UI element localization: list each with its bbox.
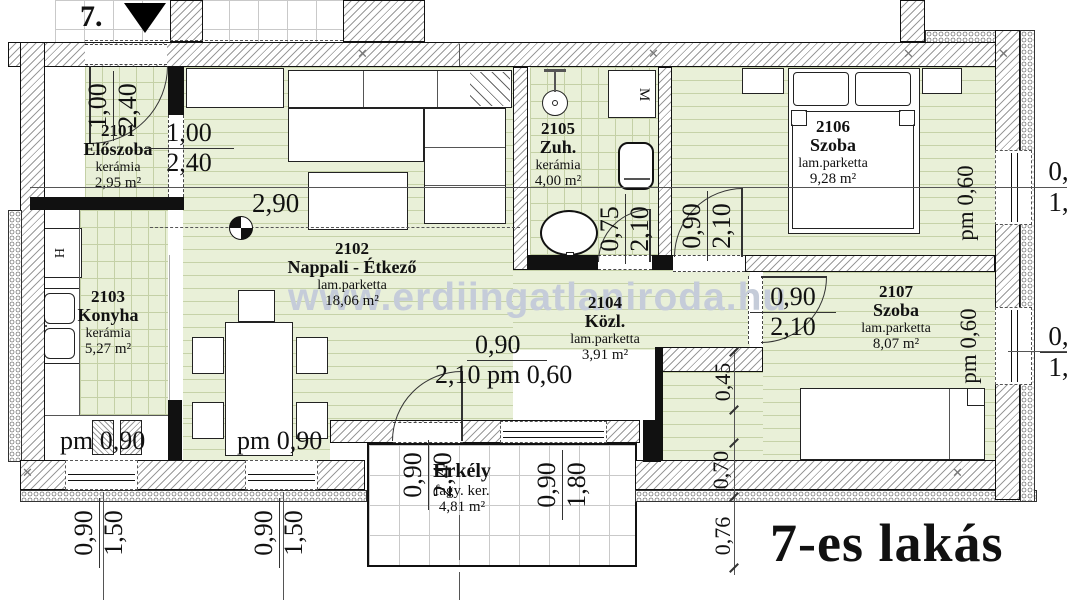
extension-line	[459, 44, 460, 66]
wall-junction-mark: ✕	[903, 47, 914, 62]
dim-balcony-left: 0,90 2,40	[400, 440, 462, 510]
wall-2101-2102	[168, 67, 184, 117]
wall-left	[20, 42, 45, 490]
shower-pipe	[544, 69, 566, 72]
wall-junction-mark: ✕	[998, 47, 1009, 62]
room-label-2102: 2102 Nappali - Étkező lam.parketta 18,06…	[282, 240, 422, 309]
wall-2106-2107	[745, 255, 995, 272]
shower-pipe	[554, 70, 556, 92]
wall-2101-2103	[30, 197, 182, 210]
chair	[296, 337, 328, 374]
dimension-reference-line	[30, 187, 1067, 188]
nightstand	[742, 68, 784, 94]
single-bed	[800, 388, 985, 460]
insulation	[1020, 30, 1035, 502]
dim-balcony-door: 0,90 2,10 pm 0,60	[435, 332, 572, 388]
nightstand	[922, 68, 962, 94]
dim-window-sw2: 0,90 1,50	[251, 498, 313, 568]
sofa-armrest	[470, 72, 510, 106]
kitchen-counter-edge	[45, 415, 168, 416]
extension-line	[459, 572, 460, 600]
wall-junction-mark: ✕	[357, 47, 368, 62]
chair	[192, 337, 224, 374]
washbasin-icon	[540, 210, 598, 256]
dim-room-2106-door: 0,90 2,10	[679, 191, 741, 261]
wall-kitchen-stub	[168, 400, 182, 460]
wall	[343, 0, 425, 42]
chair	[238, 290, 275, 322]
dim-dining-parapet: pm 0,90	[237, 426, 322, 456]
wall-2105-2106	[658, 67, 672, 270]
dim-living-width: 2,90	[252, 188, 299, 219]
sofa-seat	[288, 108, 424, 162]
entry-door-opening	[85, 44, 167, 65]
extension-line	[283, 492, 284, 600]
dim-win-2107-parapet: pm 0,60	[956, 296, 984, 396]
survey-marker-icon	[229, 216, 253, 240]
wall-junction-mark: ✕	[952, 466, 963, 481]
wall-junction-mark: ✕	[648, 47, 659, 62]
extension-line	[103, 492, 104, 600]
dim-kitchen-parapet: pm 0,90	[60, 426, 145, 456]
wall-2104-jog	[655, 347, 763, 372]
dim-bath-door: 0,75 2,10	[597, 194, 659, 264]
room-label-2107: 2107 Szoba lam.parketta 8,07 m²	[846, 283, 946, 352]
floor-plan: 7.	[0, 0, 1067, 600]
wall-2105-2104	[528, 255, 600, 270]
wall-stub	[643, 420, 661, 462]
center-line	[150, 227, 520, 228]
chair	[192, 402, 224, 439]
insulation	[8, 210, 22, 462]
dim-balcony-right: 0,90 1,80	[534, 450, 596, 520]
wall	[900, 0, 925, 42]
insulation	[635, 490, 1037, 502]
page-title: 7-es lakás	[770, 512, 1004, 574]
chain-line	[734, 350, 735, 575]
wall	[170, 0, 203, 42]
window-room-2107	[995, 307, 1032, 385]
fridge-label: H	[50, 248, 66, 258]
dim-entry-door: 1,00 2,40	[85, 71, 147, 141]
shelf	[186, 68, 284, 108]
washing-machine-label: M	[635, 88, 652, 101]
dim-hall-opening: 1,00 2,40	[160, 120, 218, 176]
landing-edge-line	[85, 40, 343, 41]
shower-icon	[542, 90, 568, 116]
washing-machine: M	[608, 70, 656, 118]
kitchen-living-boundary	[169, 255, 170, 401]
window-dining	[245, 460, 318, 490]
stair-number-label: 7.	[80, 0, 103, 34]
room-label-2103: 2103 Konyha kerámia 5,27 m²	[62, 288, 154, 357]
wall-junction-mark: ✕	[22, 466, 33, 481]
sofa-chaise	[424, 108, 506, 224]
wall-right	[995, 30, 1020, 500]
entry-direction-arrow-icon	[124, 3, 166, 33]
coffee-table	[308, 172, 408, 230]
wc-icon	[618, 142, 654, 190]
dim-right-window-bottom: 0,90 1,80	[1040, 323, 1067, 381]
dim-window-sw1: 0,90 1,50	[71, 498, 133, 568]
wall-bottom-right	[635, 460, 1035, 490]
extension-line	[459, 515, 460, 560]
extension-line	[1008, 351, 1067, 352]
window-balcony	[500, 421, 607, 443]
dim-win-2106-parapet: pm 0,60	[953, 153, 981, 253]
room-label-2105: 2105 Zuh. kerámia 4,00 m²	[510, 120, 606, 189]
dim-room-2107-door: 0,90 2,10	[763, 284, 823, 340]
window-kitchen	[65, 460, 138, 490]
room-label-2106: 2106 Szoba lam.parketta 9,28 m²	[783, 118, 883, 187]
dim-chain-045: 0,45	[710, 332, 734, 432]
